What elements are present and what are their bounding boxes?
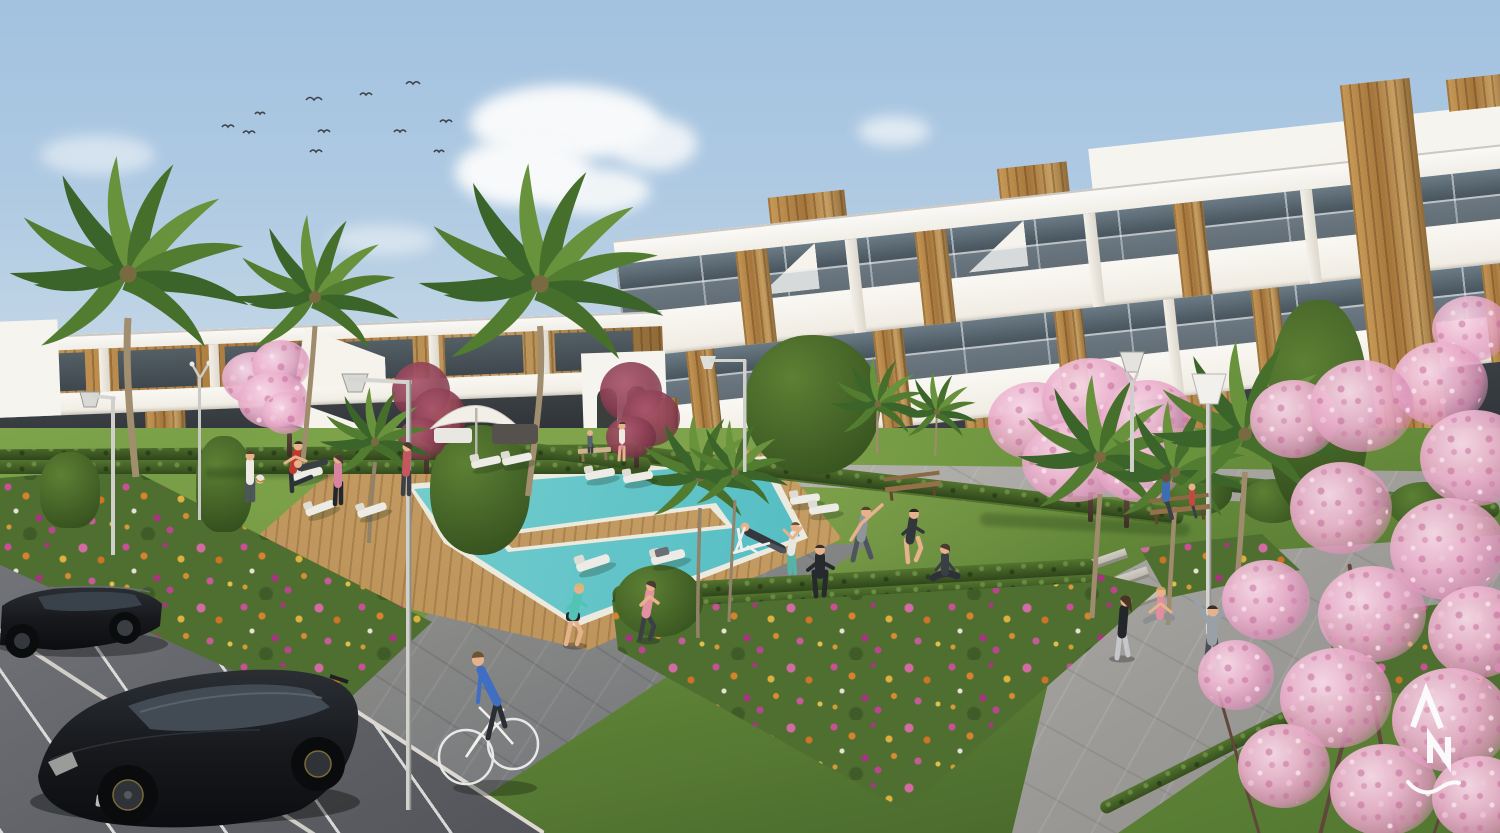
cloud <box>612 118 697 170</box>
logo-swoosh <box>1408 782 1459 792</box>
upper-window <box>118 348 197 389</box>
end-wall <box>0 319 61 418</box>
conifer <box>196 436 252 532</box>
shrub <box>615 565 703 637</box>
upper-window <box>444 335 523 376</box>
white-pier <box>538 331 550 374</box>
roof-timber-box <box>1446 73 1500 111</box>
render-scene <box>0 0 1500 833</box>
cloud <box>540 168 650 214</box>
logo-letter-a <box>1413 691 1441 728</box>
cloud <box>40 135 155 175</box>
cloud <box>330 225 435 255</box>
cloud <box>858 116 930 146</box>
green-tree <box>745 335 880 475</box>
white-pier <box>208 344 220 387</box>
watermark-logo <box>1392 668 1472 803</box>
tree-shadow <box>205 468 335 478</box>
conifer <box>40 452 100 528</box>
logo-letter-n <box>1430 737 1448 763</box>
white-pier <box>99 348 111 391</box>
